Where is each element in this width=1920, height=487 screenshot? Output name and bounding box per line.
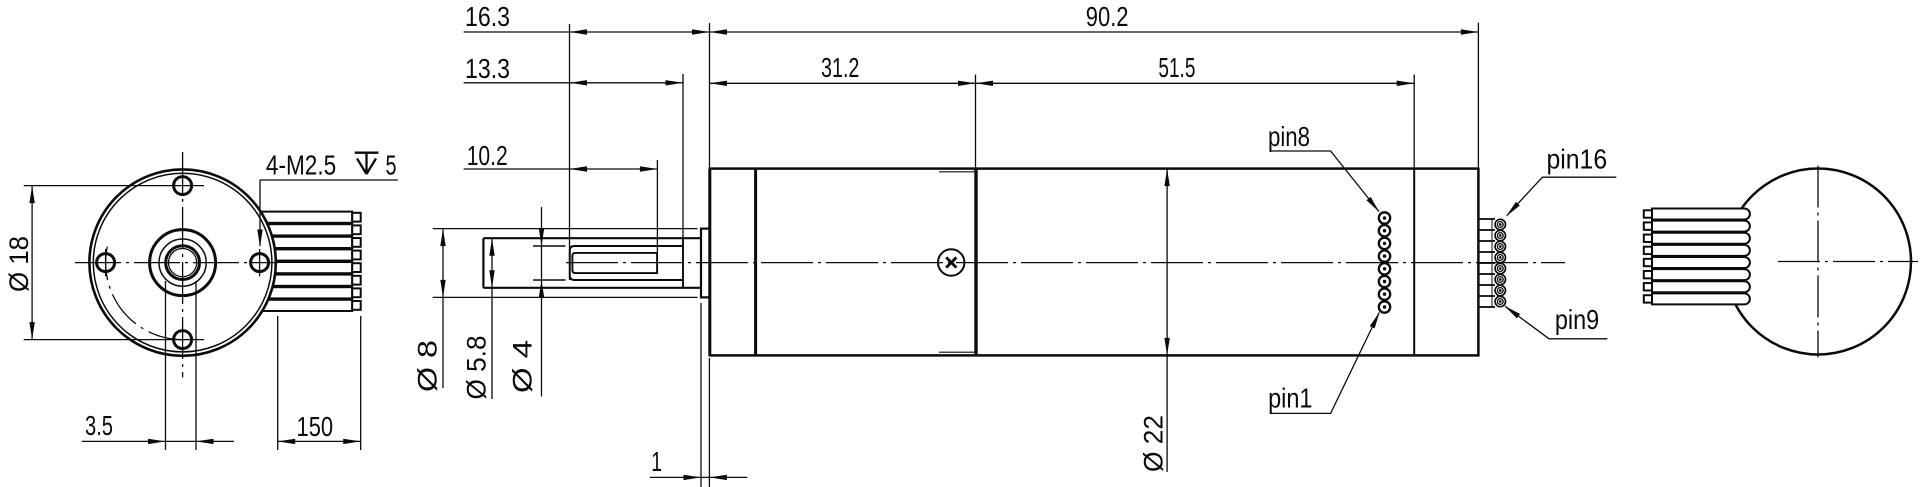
svg-text:Ø 8: Ø 8 (413, 340, 443, 392)
svg-text:1: 1 (651, 446, 662, 477)
svg-text:5: 5 (386, 150, 397, 181)
svg-text:13.3: 13.3 (465, 53, 510, 84)
svg-text:150: 150 (297, 411, 334, 442)
svg-text:4-M2.5: 4-M2.5 (266, 150, 336, 181)
svg-text:10.2: 10.2 (467, 140, 508, 171)
svg-text:Ø 4: Ø 4 (508, 340, 538, 393)
svg-text:Ø 5.8: Ø 5.8 (462, 336, 492, 400)
svg-text:pin8: pin8 (1268, 121, 1310, 152)
svg-text:pin9: pin9 (1555, 304, 1599, 335)
svg-text:90.2: 90.2 (1086, 1, 1129, 32)
svg-text:pin16: pin16 (1547, 144, 1608, 175)
svg-text:pin1: pin1 (1268, 383, 1312, 414)
svg-text:16.3: 16.3 (465, 1, 510, 32)
svg-text:31.2: 31.2 (821, 52, 859, 83)
svg-text:Ø 18: Ø 18 (4, 236, 34, 292)
svg-text:3.5: 3.5 (85, 410, 113, 441)
svg-text:Ø 22: Ø 22 (1139, 415, 1169, 472)
svg-text:51.5: 51.5 (1158, 52, 1195, 83)
